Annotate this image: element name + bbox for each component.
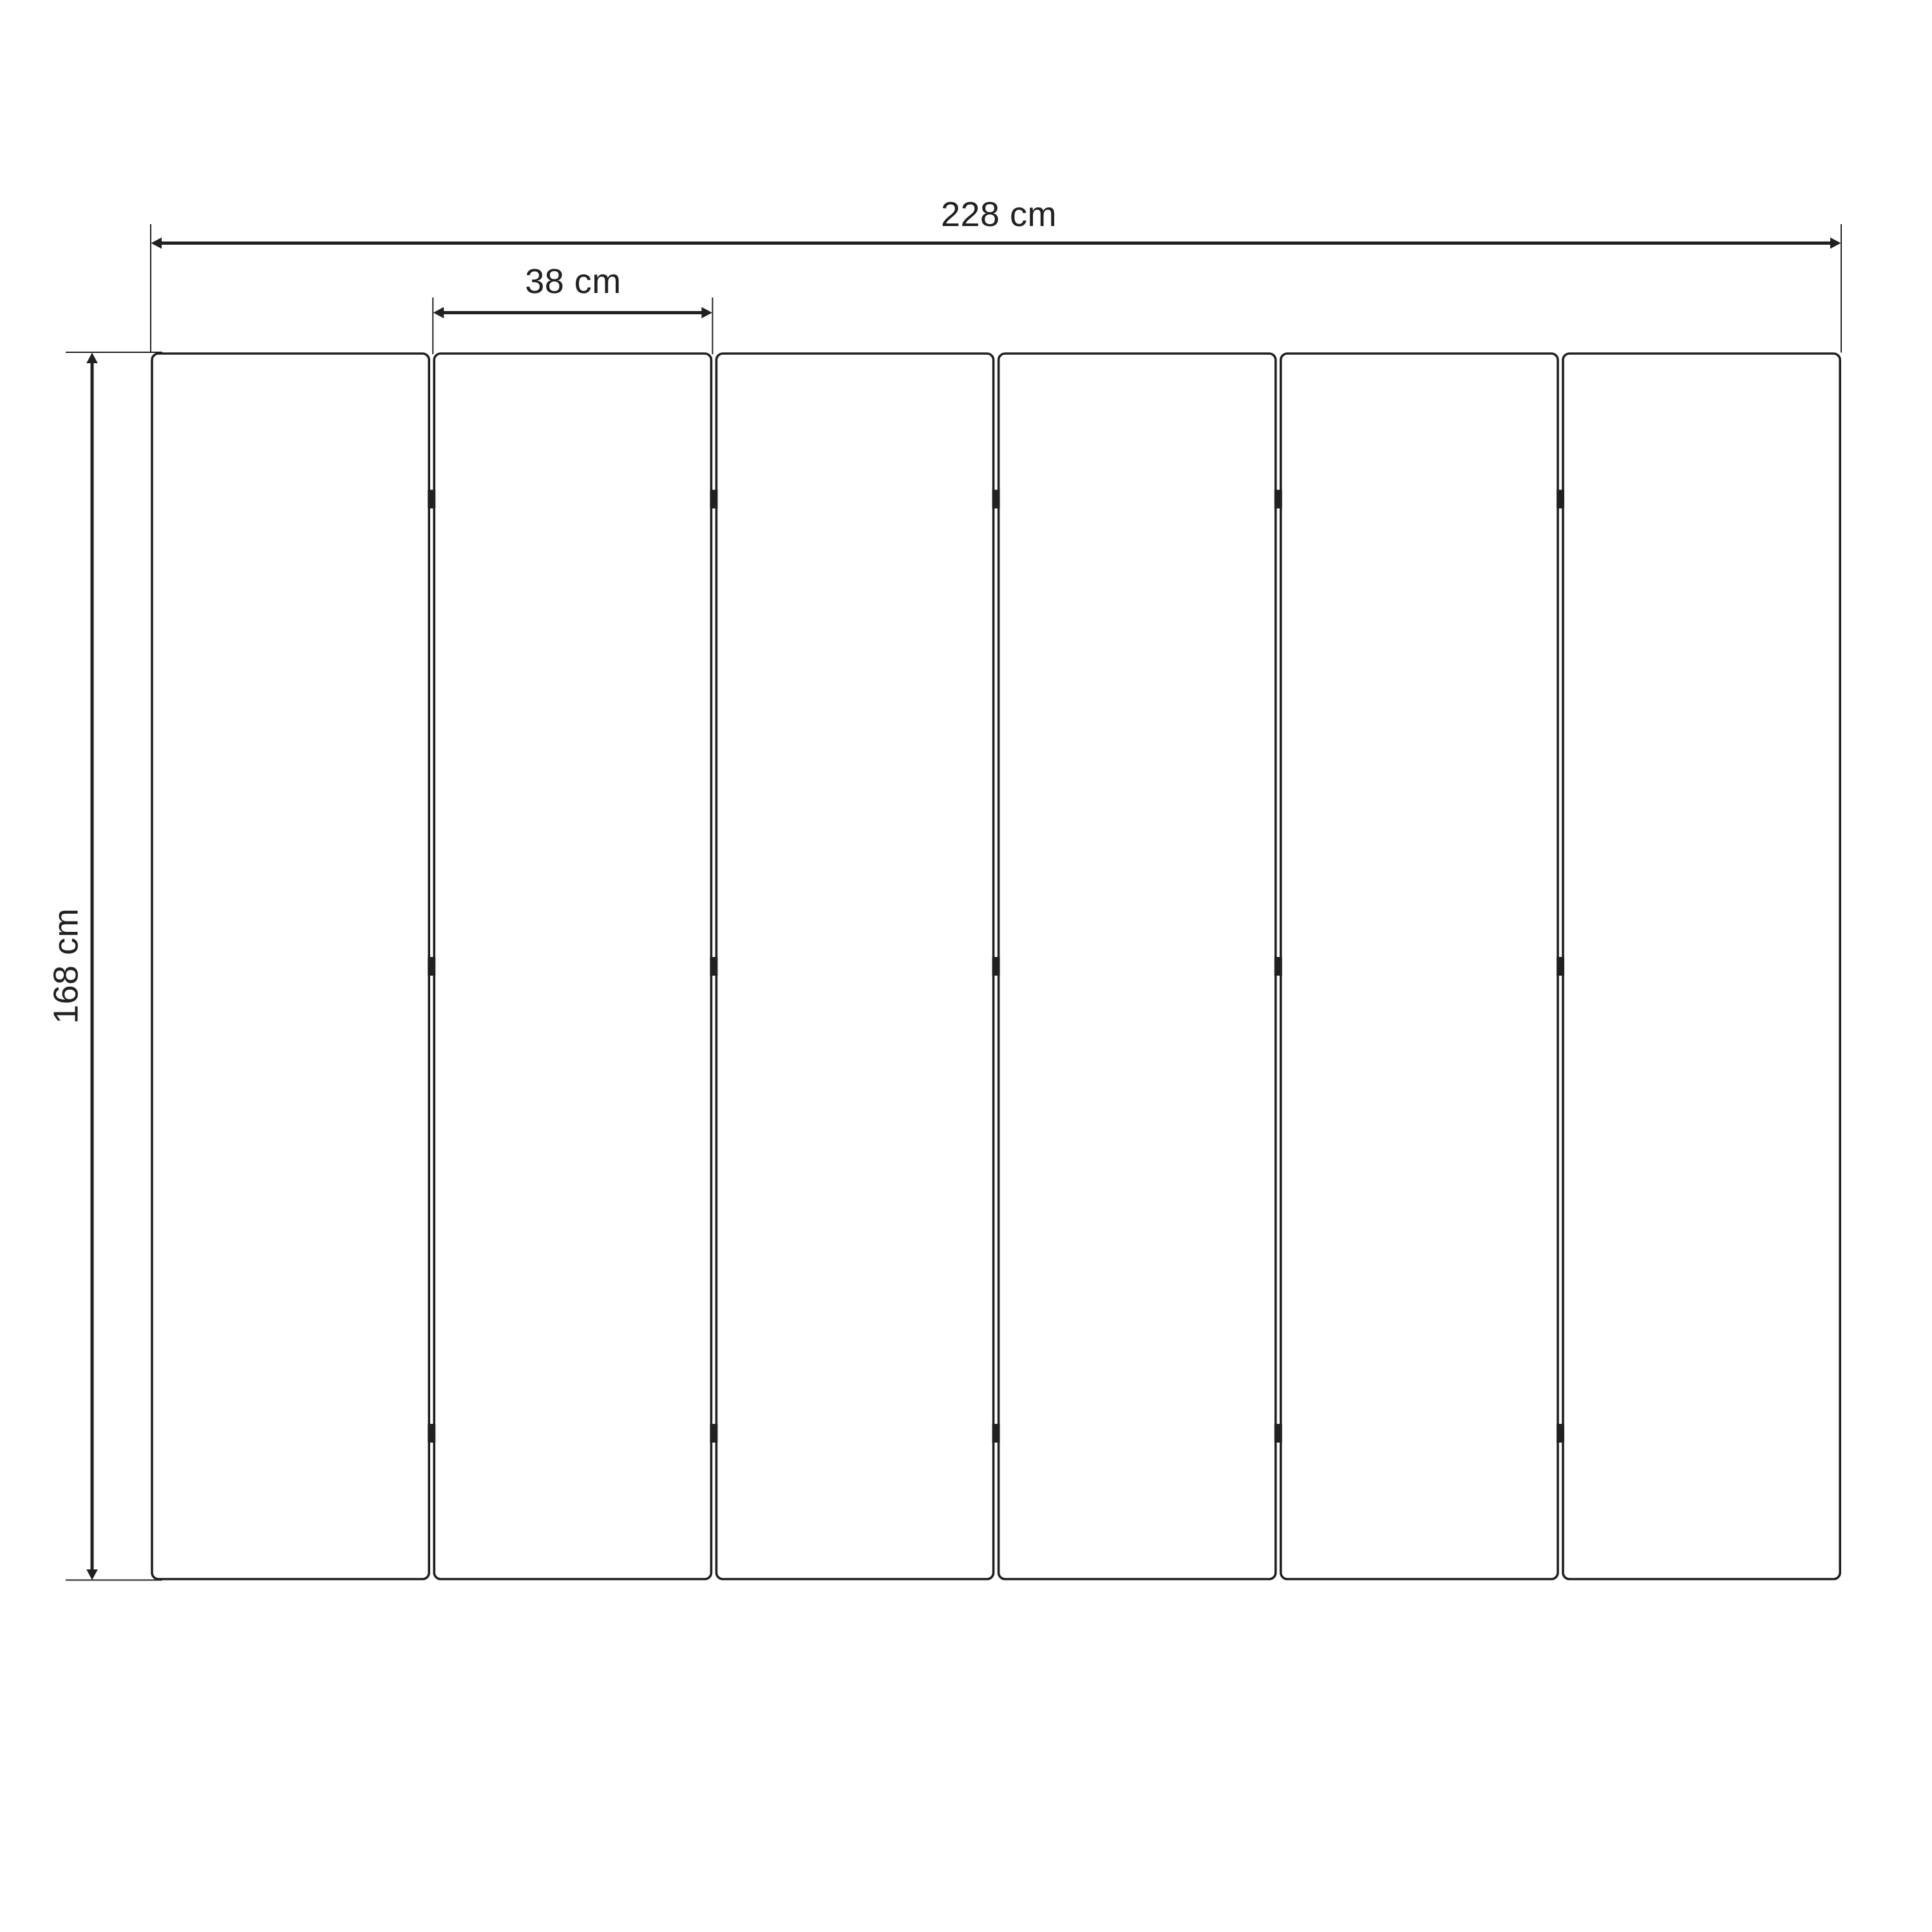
svg-text:168 cm: 168 cm — [47, 908, 86, 1024]
svg-text:38 cm: 38 cm — [525, 262, 621, 301]
svg-text:228 cm: 228 cm — [941, 195, 1057, 234]
